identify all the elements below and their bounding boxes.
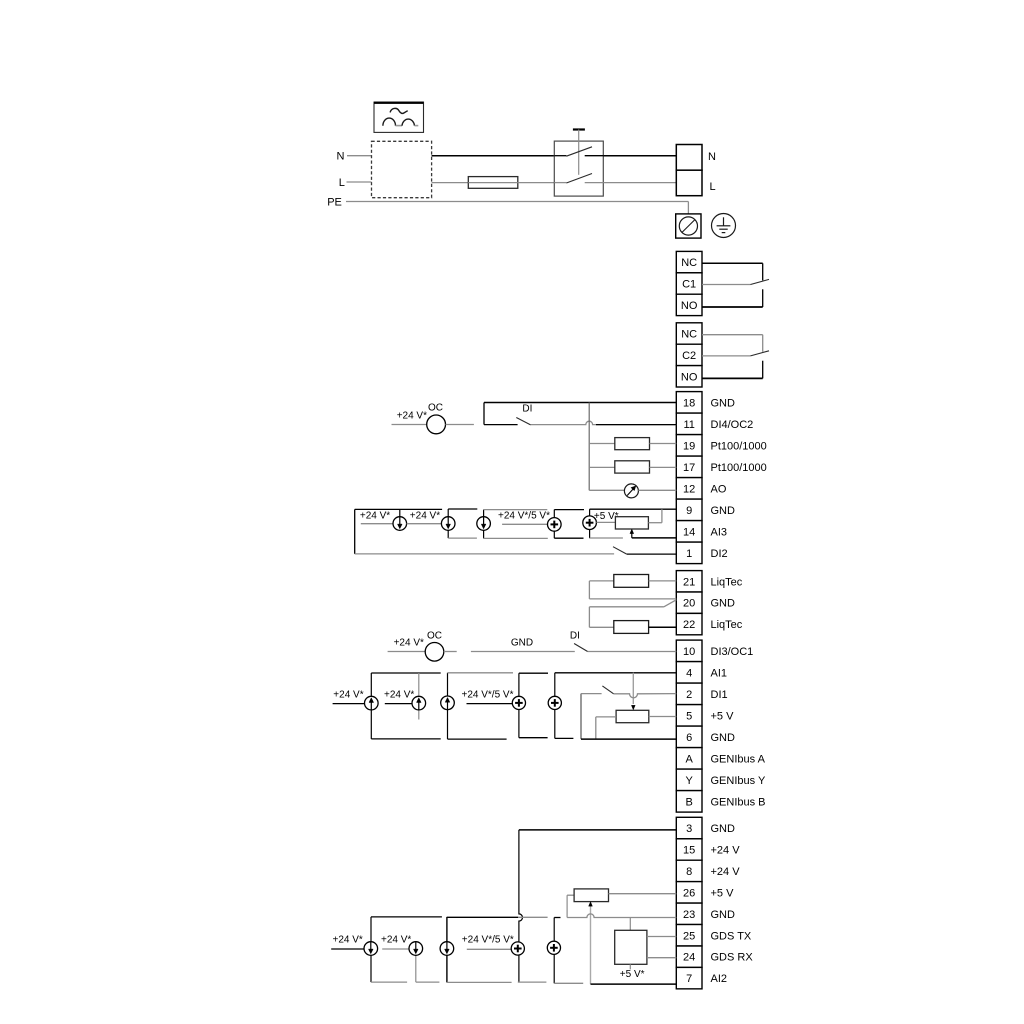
svg-text:6: 6 xyxy=(686,732,692,744)
svg-text:1: 1 xyxy=(686,548,692,560)
svg-text:+5 V: +5 V xyxy=(711,710,735,722)
svg-text:+24 V*/5 V*: +24 V*/5 V* xyxy=(462,689,514,700)
svg-text:LiqTec: LiqTec xyxy=(711,619,743,631)
svg-text:NC: NC xyxy=(681,257,697,269)
svg-text:17: 17 xyxy=(683,462,695,474)
svg-text:+24 V: +24 V xyxy=(711,845,741,857)
svg-text:AI2: AI2 xyxy=(711,973,728,985)
svg-text:7: 7 xyxy=(686,973,692,985)
svg-text:GDS TX: GDS TX xyxy=(711,930,752,942)
svg-text:OC: OC xyxy=(427,631,442,642)
svg-text:GND: GND xyxy=(711,598,736,610)
svg-text:L: L xyxy=(710,181,716,193)
svg-text:12: 12 xyxy=(683,483,695,495)
svg-text:A: A xyxy=(685,753,693,765)
svg-text:+24 V: +24 V xyxy=(711,866,741,878)
svg-text:DI4/OC2: DI4/OC2 xyxy=(711,419,754,431)
svg-text:Y: Y xyxy=(685,775,693,787)
svg-text:15: 15 xyxy=(683,845,695,857)
svg-text:+24 V*: +24 V* xyxy=(360,510,390,521)
svg-text:GENIbus B: GENIbus B xyxy=(711,796,766,808)
svg-text:22: 22 xyxy=(683,619,695,631)
svg-text:GND: GND xyxy=(711,823,736,835)
svg-text:+24 V*/5 V*: +24 V*/5 V* xyxy=(462,934,514,945)
svg-text:B: B xyxy=(685,796,692,808)
svg-text:LiqTec: LiqTec xyxy=(711,576,743,588)
svg-text:N: N xyxy=(337,151,345,163)
svg-text:23: 23 xyxy=(683,909,695,921)
svg-text:24: 24 xyxy=(683,952,695,964)
svg-text:+24 V*: +24 V* xyxy=(394,638,424,649)
svg-text:+24 V*: +24 V* xyxy=(384,689,414,700)
svg-text:11: 11 xyxy=(683,419,694,431)
svg-text:L: L xyxy=(339,177,345,189)
svg-text:25: 25 xyxy=(683,930,695,942)
svg-text:DI1: DI1 xyxy=(711,689,728,701)
svg-text:GENIbus A: GENIbus A xyxy=(711,753,766,765)
svg-text:AI3: AI3 xyxy=(711,526,728,538)
svg-text:C2: C2 xyxy=(682,350,696,362)
svg-text:+24 V*: +24 V* xyxy=(397,411,427,422)
svg-text:NC: NC xyxy=(681,329,697,341)
svg-text:OC: OC xyxy=(428,403,443,414)
svg-text:GND: GND xyxy=(711,909,736,921)
svg-text:AO: AO xyxy=(711,483,727,495)
svg-text:5: 5 xyxy=(686,710,692,722)
svg-text:+24 V*: +24 V* xyxy=(381,934,411,945)
svg-text:DI: DI xyxy=(570,631,580,642)
svg-text:+5 V: +5 V xyxy=(711,887,735,899)
svg-text:20: 20 xyxy=(683,598,695,610)
svg-text:Pt100/1000: Pt100/1000 xyxy=(711,440,767,452)
svg-text:GND: GND xyxy=(511,638,533,649)
svg-text:9: 9 xyxy=(686,505,692,517)
svg-text:NO: NO xyxy=(681,371,698,383)
svg-text:26: 26 xyxy=(683,887,695,899)
svg-text:14: 14 xyxy=(683,526,695,538)
svg-text:8: 8 xyxy=(686,866,692,878)
svg-text:+24 V*: +24 V* xyxy=(333,934,363,945)
svg-text:GENIbus Y: GENIbus Y xyxy=(711,775,766,787)
svg-text:AI1: AI1 xyxy=(711,667,728,679)
svg-text:DI3/OC1: DI3/OC1 xyxy=(711,646,754,658)
svg-text:+24 V*: +24 V* xyxy=(333,689,363,700)
svg-text:GND: GND xyxy=(711,505,736,517)
svg-text:PE: PE xyxy=(327,197,342,209)
svg-text:21: 21 xyxy=(683,576,695,588)
svg-text:10: 10 xyxy=(683,646,695,658)
svg-text:N: N xyxy=(708,151,716,163)
svg-text:19: 19 xyxy=(683,440,695,452)
svg-text:DI: DI xyxy=(522,404,532,415)
svg-text:C1: C1 xyxy=(682,279,696,291)
svg-text:+24 V*/5 V*: +24 V*/5 V* xyxy=(498,510,550,521)
svg-text:+24 V*: +24 V* xyxy=(410,510,440,521)
svg-text:2: 2 xyxy=(686,689,692,701)
svg-text:4: 4 xyxy=(686,667,692,679)
svg-text:+5 V*: +5 V* xyxy=(620,969,645,980)
svg-text:NO: NO xyxy=(681,300,698,312)
svg-text:GND: GND xyxy=(711,397,736,409)
svg-text:18: 18 xyxy=(683,397,695,409)
svg-text:DI2: DI2 xyxy=(711,548,728,560)
svg-text:GND: GND xyxy=(711,732,736,744)
svg-text:GDS RX: GDS RX xyxy=(711,952,754,964)
svg-text:Pt100/1000: Pt100/1000 xyxy=(711,462,767,474)
svg-text:3: 3 xyxy=(686,823,692,835)
